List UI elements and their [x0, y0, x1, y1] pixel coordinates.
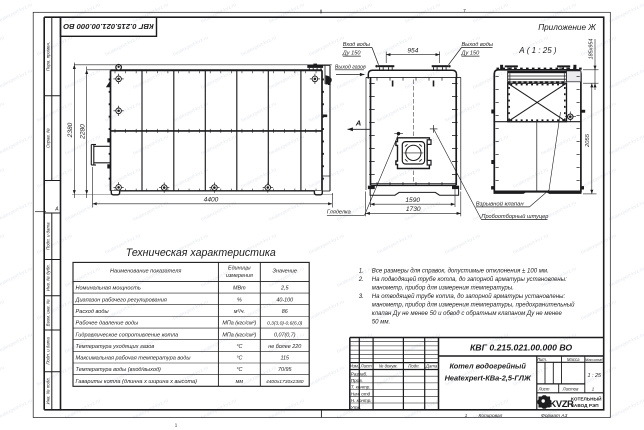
svg-text:Масштаб: Масштаб	[585, 357, 604, 362]
svg-text:%: %	[237, 297, 242, 303]
svg-text:Расход воды: Расход воды	[76, 309, 109, 315]
svg-text:0,07(0,7): 0,07(0,7)	[274, 332, 296, 338]
svg-text:Подп. и дата: Подп. и дата	[45, 337, 50, 365]
svg-text:Утв.: Утв.	[351, 405, 361, 410]
svg-text:Диапазон рабочего регулировани: Диапазон рабочего регулирования	[75, 297, 167, 303]
svg-text:манометр, прибор для измерения: манометр, прибор для измерения температу…	[372, 301, 575, 308]
svg-text:185х954: 185х954	[588, 39, 594, 60]
svg-text:115: 115	[280, 356, 290, 362]
svg-text:Техническая характеристика: Техническая характеристика	[126, 247, 276, 259]
svg-text:На подводящей трубе котла, до: На подводящей трубе котла, до запорной а…	[372, 276, 567, 283]
svg-text:Гавариты котла (длинна х ширин: Гавариты котла (длинна х ширина х высота…	[76, 379, 198, 385]
svg-text:Нач. отд: Нач. отд	[351, 391, 371, 396]
svg-text:Пров.: Пров.	[351, 378, 363, 383]
svg-text:Гидравлическое сопротивление к: Гидравлическое сопротивление котла	[76, 332, 179, 338]
svg-text:3.: 3.	[359, 294, 364, 300]
svg-text:МПа (кгс/см²): МПа (кгс/см²)	[222, 321, 256, 327]
svg-text:70/95: 70/95	[278, 367, 292, 373]
svg-text:Формат А3: Формат А3	[541, 413, 568, 419]
svg-text:Масса: Масса	[567, 357, 580, 362]
svg-text:0,3(3,0)-0,6(6,0): 0,3(3,0)-0,6(6,0)	[267, 321, 303, 327]
svg-text:2380: 2380	[67, 122, 74, 138]
svg-text:клапан Ду не менее 50 и обвод: клапан Ду не менее 50 и обвод с обратным…	[372, 311, 563, 317]
svg-text:Выход газов: Выход газов	[335, 64, 366, 70]
svg-text:Н. контр.: Н. контр.	[351, 398, 372, 403]
svg-text:манометр, прибор для измерения: манометр, прибор для измерения температу…	[372, 285, 514, 291]
svg-text:А: А	[355, 119, 361, 128]
svg-text:Единицы: Единицы	[228, 266, 251, 272]
svg-text:А ( 1 : 25 ): А ( 1 : 25 )	[518, 46, 557, 55]
svg-text:не более 220: не более 220	[268, 344, 301, 350]
svg-text:МПа (кгс/см²): МПа (кгс/см²)	[222, 332, 256, 338]
svg-text:Изм.: Изм.	[350, 363, 359, 368]
svg-text:Максимальная рабочая температу: Максимальная рабочая температура воды	[76, 356, 191, 362]
svg-text:Дата: Дата	[425, 363, 438, 368]
svg-text:Взам. инв. №: Взам. инв. №	[45, 299, 50, 326]
svg-text:1730: 1730	[406, 206, 421, 213]
svg-text:1.: 1.	[359, 268, 364, 274]
svg-text:954: 954	[407, 47, 418, 54]
svg-text:Приложение Ж: Приложение Ж	[538, 23, 596, 32]
svg-text:Наименование показателя: Наименование показателя	[110, 268, 181, 274]
svg-text:Подп.: Подп.	[408, 363, 419, 368]
svg-text:4400х1730х2380: 4400х1730х2380	[266, 379, 304, 385]
svg-text:Лист: Лист	[360, 363, 372, 368]
svg-text:м³/ч.: м³/ч.	[234, 309, 245, 315]
svg-text:Температура уходящих газов: Температура уходящих газов	[76, 344, 155, 350]
svg-text:Ду 150: Ду 150	[461, 50, 481, 56]
svg-text:Лист: Лист	[537, 387, 549, 392]
svg-text:Гляделка: Гляделка	[327, 210, 351, 216]
svg-text:Копировал: Копировал	[479, 413, 503, 419]
svg-text:Выход воды: Выход воды	[462, 42, 493, 48]
svg-text:Температура воды (вход/выход): Температура воды (вход/выход)	[76, 367, 162, 373]
svg-text:Разраб.: Разраб.	[351, 371, 368, 376]
svg-text:2055: 2055	[585, 133, 591, 148]
svg-text:А: А	[54, 207, 59, 213]
svg-text:4400: 4400	[204, 197, 219, 204]
svg-text:1590: 1590	[405, 197, 420, 204]
svg-text:КВГ 0.215.021.00.000 ВО: КВГ 0.215.021.00.000 ВО	[470, 343, 572, 353]
svg-text:°С: °С	[236, 367, 242, 373]
svg-text:МВт: МВт	[233, 286, 246, 292]
svg-text:Взрывной клапан: Взрывной клапан	[476, 200, 525, 207]
svg-text:2280: 2280	[80, 124, 87, 140]
svg-text:40-100: 40-100	[276, 297, 293, 303]
svg-text:°С: °С	[236, 344, 242, 350]
svg-text:№ докум.: № докум.	[379, 363, 398, 368]
svg-text:50 мм.: 50 мм.	[372, 319, 390, 325]
svg-text:измерения: измерения	[226, 273, 253, 279]
svg-text:Инв. № подл.: Инв. № подл.	[45, 377, 50, 404]
svg-text:Значение: Значение	[272, 268, 297, 274]
svg-text:Номинальная мощность: Номинальная мощность	[76, 286, 141, 292]
svg-text:Вход воды: Вход воды	[343, 42, 370, 48]
svg-text:2,5: 2,5	[280, 286, 289, 292]
svg-text:86: 86	[282, 309, 288, 315]
svg-text:Т. контр.: Т. контр.	[351, 385, 371, 390]
svg-text:Листов: Листов	[562, 387, 579, 392]
svg-text:мм: мм	[236, 379, 244, 385]
svg-text:На отводящей трубе котла, до з: На отводящей трубе котла, до запорной ар…	[372, 293, 566, 300]
svg-text:Рабочее давление воды: Рабочее давление воды	[76, 321, 139, 327]
svg-text:Лит.: Лит.	[536, 357, 547, 362]
svg-text:Котел водогрейный: Котел водогрейный	[450, 361, 527, 370]
svg-text:КВГ 0.215.021.00.000 ВО: КВГ 0.215.021.00.000 ВО	[63, 22, 153, 31]
svg-text:°С: °С	[236, 356, 242, 362]
svg-text:КОТЕЛЬНЫЙ: КОТЕЛЬНЫЙ	[571, 395, 602, 402]
svg-text:Справ. №: Справ. №	[45, 128, 50, 148]
svg-text:2.: 2.	[358, 277, 364, 283]
svg-text:Все размеры для справок, допус: Все размеры для справок, допустимые откл…	[372, 268, 549, 274]
svg-text:1 : 25: 1 : 25	[588, 373, 602, 379]
svg-text:Перв. примен.: Перв. примен.	[45, 42, 50, 71]
svg-text:Heatexpert-КВа-2,5-ГЛЖ: Heatexpert-КВа-2,5-ГЛЖ	[445, 373, 532, 382]
svg-text:Инв. № дубл.: Инв. № дубл.	[45, 264, 50, 291]
svg-text:ЗАВОД РЭП: ЗАВОД РЭП	[571, 403, 599, 408]
svg-text:Ду 150: Ду 150	[342, 50, 362, 56]
svg-text:Пробоотборный штуцер: Пробоотборный штуцер	[481, 213, 548, 220]
svg-text:Подп. и дата: Подп. и дата	[45, 222, 50, 250]
